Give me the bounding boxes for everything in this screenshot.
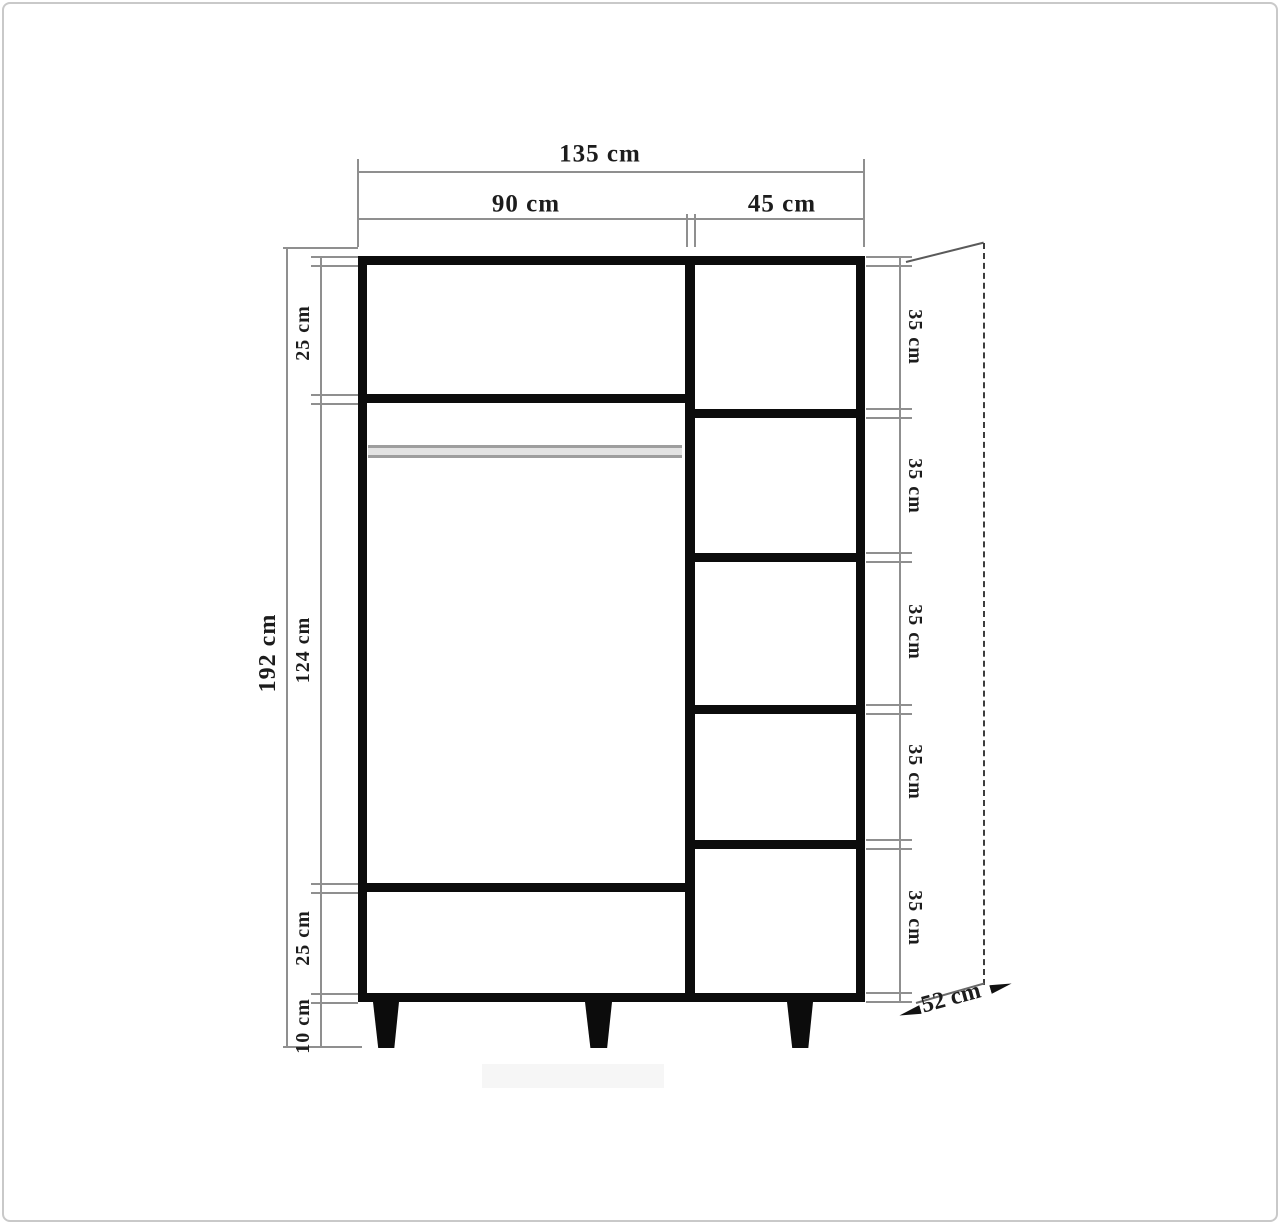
dim-tick-l3a [311,883,358,885]
dim-tick-r2b [866,417,912,419]
dim-tick-r4a [866,704,912,706]
dim-tick-r1b [866,265,912,267]
label-depth: 52 cm [919,979,984,1018]
cabinet-right-panel [856,256,865,1002]
label-top-compartment: 25 cm [293,305,313,361]
hanging-rod [368,445,682,458]
dim-ext-top-left [357,159,359,247]
right-shelf-1 [695,409,856,418]
dim-tick-l4b [311,1002,358,1004]
label-total-height: 192 cm [256,614,280,693]
depth-dashed-line [983,243,985,985]
label-leg-height: 10 cm [293,998,313,1054]
dim-tick-r5a [866,839,912,841]
wardrobe-dimension-diagram: 135 cm 90 cm 45 cm 192 cm 25 cm 124 cm 2… [0,0,1280,1224]
leg-right [787,1002,813,1048]
dim-line-sections-width [358,218,865,220]
dim-tick-r3a [866,552,912,554]
dim-tick-r6a [866,992,912,994]
label-left-section-width: 90 cm [492,192,560,217]
right-shelf-2 [695,553,856,562]
label-shelf-5: 35 cm [905,890,925,946]
image-frame [2,2,1278,1222]
label-bottom-compartment: 25 cm [293,910,313,966]
dim-tick-l1a [311,256,358,258]
dim-tick-r3b [866,561,912,563]
depth-arrow-left-icon [898,1005,922,1020]
dim-tick-l2b [311,403,358,405]
cabinet-center-divider [685,256,695,1002]
label-shelf-1: 35 cm [905,309,925,365]
leg-left [373,1002,399,1048]
leg-middle [585,1002,612,1048]
dim-line-total-width [358,171,865,173]
dim-tick-l4a [311,993,358,995]
dim-tick-center-b [694,214,696,247]
dim-tick-l1b [311,265,358,267]
label-shelf-4: 35 cm [905,744,925,800]
dim-tick-center-a [686,214,688,247]
dim-tick-r2a [866,408,912,410]
label-shelf-3: 35 cm [905,604,925,660]
label-shelf-2: 35 cm [905,458,925,514]
label-right-section-width: 45 cm [748,192,816,217]
depth-top-edge-line [906,242,984,263]
dim-tick-r6b [866,1001,912,1003]
cabinet-top-panel [358,256,865,265]
dim-tick-r1a [866,256,912,258]
left-bottom-shelf [367,883,685,892]
dim-line-total-height [286,247,288,1048]
dim-tick-r5b [866,848,912,850]
dim-tick-l3b [311,892,358,894]
left-top-shelf [367,394,685,403]
right-shelf-3 [695,705,856,714]
cabinet-left-panel [358,256,367,1002]
dim-line-right-segments [899,256,901,1002]
floor-shadow [482,1064,664,1088]
dim-tick-r4b [866,713,912,715]
right-shelf-4 [695,840,856,849]
cabinet-bottom-panel [358,993,865,1002]
dim-ext-top-right [863,159,865,247]
dim-tick-height-top [283,247,358,249]
depth-arrow-right-icon [989,979,1013,994]
dim-tick-l2a [311,394,358,396]
label-total-width: 135 cm [559,142,641,167]
dim-line-left-segments [320,256,322,1048]
label-middle-section: 124 cm [293,617,313,684]
